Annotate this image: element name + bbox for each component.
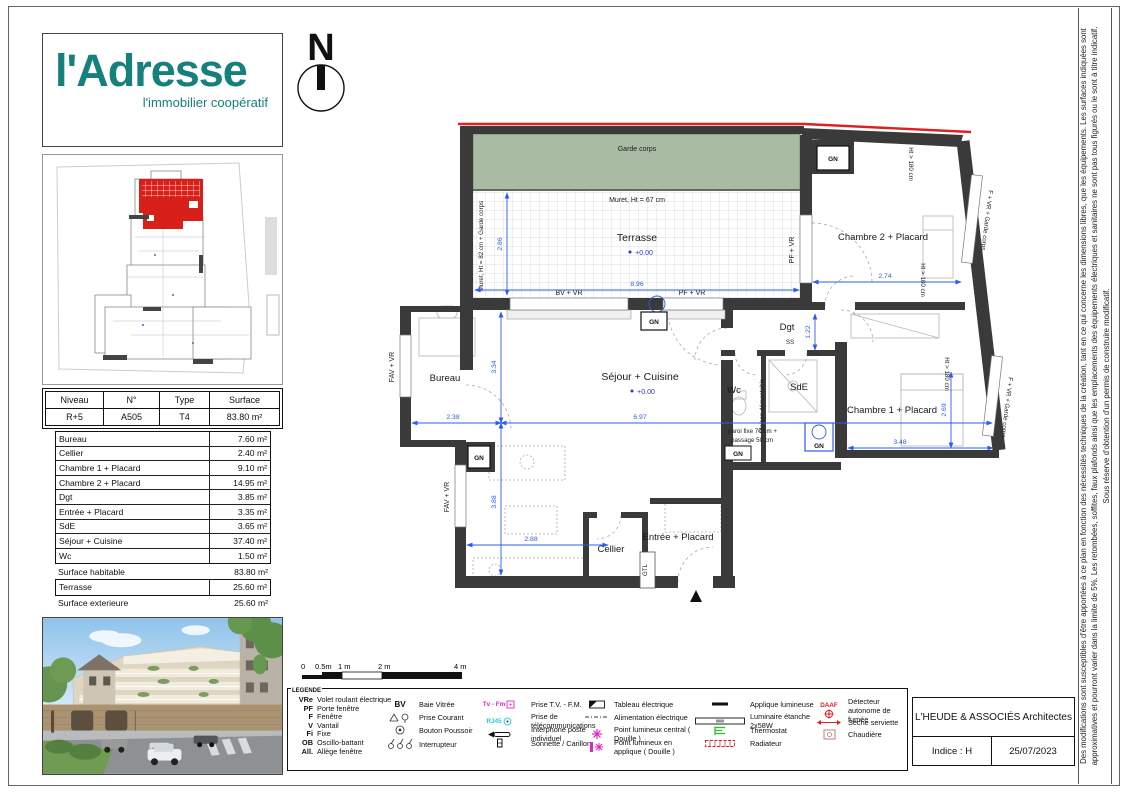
unit-header-type: Type	[160, 392, 210, 409]
area-label: SdE	[56, 520, 210, 534]
plan-date: 25/07/2023	[992, 737, 1074, 765]
electrical-panel-icon	[584, 700, 610, 709]
dim-chambre2-w: 2.74	[878, 273, 891, 280]
unit-value-numero: A505	[104, 409, 160, 426]
terrasse-row: Terrasse25.60 m²	[56, 580, 270, 595]
area-value: 37.40 m²	[210, 536, 270, 546]
legend-column-electrical: Tableau électrique Alimentation électriq…	[584, 699, 696, 748]
dim-terrasse-h: 2.86	[497, 237, 504, 250]
gn-label: GN	[649, 319, 659, 326]
building-rendering-photo	[42, 617, 283, 775]
gn-label: GN	[814, 443, 824, 450]
agency-logo-tagline: l'immobilier coopératif	[55, 95, 272, 110]
legend-abbreviations: VReVolet roulant électrique PFPorte fenê…	[293, 695, 393, 755]
waterproof-luminaire-icon	[694, 717, 746, 725]
wall-light-icon	[584, 741, 610, 753]
dim-sejour-w: 6.97	[633, 414, 646, 421]
ss-label: SS	[786, 339, 794, 346]
unit-header-numero: N°	[104, 392, 160, 409]
unit-info-table: Niveau N° Type Surface R+5 A505 T4 83.80…	[42, 388, 283, 429]
area-label: Dgt	[56, 490, 210, 504]
pf-vr-label: PF + VR	[789, 237, 796, 264]
table-row: Chambre 2 + Placard14.95 m²	[56, 476, 270, 491]
site-plan-thumbnail	[42, 154, 283, 385]
area-label: Bureau	[56, 432, 210, 446]
table-row: Bureau7.60 m²	[56, 432, 270, 447]
dim-terrasse-w: 8.96	[630, 281, 643, 288]
disclaimer-text: Des modifications sont susceptibles d'êt…	[1078, 24, 1112, 768]
unit-value-niveau: R+5	[46, 409, 104, 426]
area-value: 2.40 m²	[210, 448, 270, 458]
f-vr-gc-label: F + VR + Garde corps	[979, 190, 993, 251]
legend-column-safety: DAAFDétecteur autonome de fumée Sèche se…	[814, 697, 906, 739]
surface-exterieure-row: Surface exterieure25.60 m²	[55, 596, 271, 611]
north-arrow: N	[288, 20, 358, 116]
f-vr-gc-label: F + VR + Garde corps	[999, 377, 1013, 438]
area-label: Cellier	[56, 447, 210, 461]
revision-index: Indice : H	[913, 737, 992, 765]
ht180-label: Ht > 180 cm	[919, 263, 926, 297]
ht180-label: Ht > 180 cm	[907, 147, 914, 181]
entry-door-marker	[690, 590, 702, 602]
boiler-icon	[814, 729, 844, 740]
fav-vr-label: FAV + VR	[444, 482, 451, 512]
radiator-icon	[694, 739, 746, 748]
architect-name: L'HEUDE & ASSOCIÉS Architectes	[913, 698, 1074, 737]
table-row: Séjour + Cuisine37.40 m²	[56, 534, 270, 549]
table-row: Wc1.50 m²	[56, 549, 270, 564]
room-label-sde: SdE	[790, 382, 808, 393]
area-value: 14.95 m²	[210, 478, 270, 488]
fav-vr-label: FAV + VR	[389, 352, 396, 382]
garde-corps-label: Garde corps	[618, 146, 657, 153]
gn-label: GN	[828, 156, 838, 163]
outlet-icon	[385, 712, 415, 723]
dim-bureau-w: 2.38	[446, 414, 459, 421]
agency-logo: l'Adresse l'immobilier coopératif	[42, 33, 283, 147]
area-label: Séjour + Cuisine	[56, 534, 210, 548]
area-value: 3.35 m²	[210, 507, 270, 517]
agency-logo-text: l'Adresse	[55, 48, 272, 93]
area-value: 1.50 m²	[210, 551, 270, 561]
terrace-area	[473, 134, 800, 298]
sejour-level: +0.00	[637, 389, 655, 396]
unit-value-type: T4	[160, 409, 210, 426]
unit-header-surface: Surface	[210, 392, 280, 409]
room-label-cellier: Cellier	[598, 544, 625, 555]
room-label-bureau: Bureau	[430, 373, 461, 384]
legend: LEGENDE VReVolet roulant électrique PFPo…	[287, 688, 908, 771]
cloison-label: Cloison démontable	[759, 378, 766, 433]
towel-dryer-icon	[814, 719, 844, 726]
terrasse-level: +0.00	[635, 250, 653, 257]
paroi-label-1: paroi fixe 70 cm +	[728, 428, 777, 435]
area-value: 9.10 m²	[210, 463, 270, 473]
scale-tick-2: 2 m	[378, 662, 391, 671]
room-label-entree: Entrée + Placard	[642, 532, 713, 543]
sconce-icon	[694, 701, 746, 707]
pf-vr-label: PF + VR	[679, 290, 706, 297]
switch-icon	[385, 738, 415, 750]
bv-vr-label: BV + VR	[555, 290, 582, 297]
bv-symbol: BV	[385, 700, 415, 709]
dim-chambre1-h: 2.69	[941, 403, 948, 416]
room-label-chambre2: Chambre 2 + Placard	[838, 232, 928, 243]
area-value: 7.60 m²	[210, 434, 270, 444]
legend-title: LEGENDE	[291, 688, 322, 694]
table-row: Cellier2.40 m²	[56, 447, 270, 462]
area-label: Wc	[56, 549, 210, 564]
tv-socket-icon: Tv - Fm	[472, 700, 527, 709]
room-label-terrasse: Terrasse	[617, 232, 657, 244]
pushbutton-icon	[385, 725, 415, 736]
muret82-label: Muret, Ht = 82 cm + Garde corps	[478, 201, 485, 291]
doorbell-icon	[472, 738, 527, 748]
dim-dgt-h: 1.22	[805, 325, 812, 338]
table-row: SdE3.65 m²	[56, 520, 270, 535]
gn-label: GN	[733, 451, 743, 458]
room-label-chambre1: Chambre 1 + Placard	[847, 405, 937, 416]
dim-kitchen-w: 2.88	[524, 536, 537, 543]
dim-sejour-h1: 3.34	[491, 360, 498, 373]
thermostat-icon	[694, 725, 746, 736]
building-rendering	[43, 618, 282, 774]
table-row: Dgt3.85 m²	[56, 490, 270, 505]
dim-chambre1-w: 3.48	[893, 439, 906, 446]
scale-tick-1: 1 m	[338, 662, 351, 671]
surface-habitable-row: Surface habitable83.80 m²	[55, 564, 271, 579]
room-label-sejour: Séjour + Cuisine	[601, 371, 678, 383]
room-label-wc: Wc	[727, 385, 741, 396]
scale-bar: 0 0.5m 1 m 2 m 4 m	[298, 660, 473, 686]
legend-column-fixtures: Applique lumineuse Luminaire étanche 2x5…	[694, 699, 816, 748]
gn-label: GN	[474, 455, 484, 462]
room-areas-table: Bureau7.60 m² Cellier2.40 m² Chambre 1 +…	[55, 431, 271, 610]
site-plan-drawing	[43, 155, 282, 384]
unit-header-niveau: Niveau	[46, 392, 104, 409]
dim-sejour-h2: 3.88	[491, 495, 498, 508]
muret67-label: Muret, Ht = 67 cm	[609, 197, 665, 204]
paroi-label-2: passage 50 cm	[731, 437, 773, 444]
unit-value-surface: 83.80 m²	[210, 409, 280, 426]
room-label-dgt: Dgt	[780, 322, 795, 333]
scale-tick-0: 0	[301, 662, 305, 671]
north-label: N	[307, 27, 334, 69]
legend-column-openings: BVBaie Vitrée Prise Courant Bouton Pouss…	[385, 699, 477, 748]
gtl-label: GTL	[642, 563, 649, 576]
floor-plan: GN GN GN GN GN GTL Garde corps Muret, Ht…	[383, 120, 1015, 612]
title-block: L'HEUDE & ASSOCIÉS Architectes Indice : …	[912, 697, 1075, 766]
ht180-label: Ht > 180 cm	[943, 357, 950, 391]
area-value: 3.85 m²	[210, 492, 270, 502]
area-label: Chambre 2 + Placard	[56, 476, 210, 490]
legend-column-sockets: Tv - FmPrise T.V. - F.M. RJ45Prise de té…	[472, 699, 588, 748]
area-label: Chambre 1 + Placard	[56, 461, 210, 475]
scale-tick-4: 4 m	[454, 662, 467, 671]
table-row: Chambre 1 + Placard9.10 m²	[56, 461, 270, 476]
scale-tick-05: 0.5m	[315, 662, 332, 671]
table-row: Entrée + Placard3.35 m²	[56, 505, 270, 520]
area-value: 3.65 m²	[210, 521, 270, 531]
area-label: Entrée + Placard	[56, 505, 210, 519]
power-feed-icon	[584, 714, 610, 720]
